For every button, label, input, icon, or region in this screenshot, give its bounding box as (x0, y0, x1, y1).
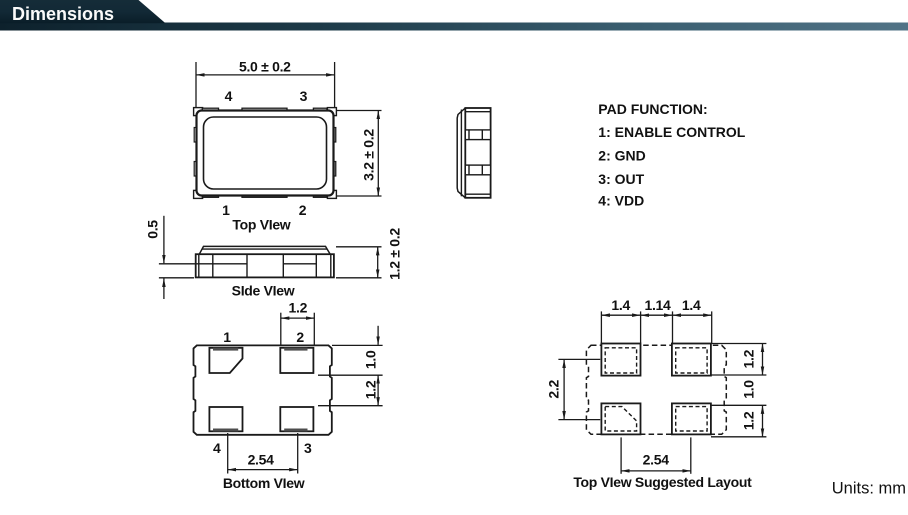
svg-text:1.2: 1.2 (289, 299, 308, 315)
svg-text:SIde VIew: SIde VIew (232, 283, 295, 299)
svg-text:1.2: 1.2 (362, 380, 378, 399)
svg-text:1.0: 1.0 (741, 380, 757, 399)
svg-text:1.2 ± 0.2: 1.2 ± 0.2 (387, 228, 403, 280)
svg-text:3: OUT: 3: OUT (598, 171, 644, 187)
svg-text:1.2: 1.2 (741, 411, 757, 430)
svg-text:PAD FUNCTION:: PAD FUNCTION: (598, 101, 707, 117)
svg-text:2: 2 (296, 329, 304, 345)
svg-text:4: 4 (225, 88, 233, 104)
svg-text:2.2: 2.2 (546, 380, 562, 399)
svg-text:0.5: 0.5 (145, 220, 161, 239)
svg-text:1: 1 (222, 202, 230, 218)
svg-text:2.54: 2.54 (643, 452, 670, 468)
svg-text:3: 3 (300, 88, 308, 104)
svg-text:3.2 ± 0.2: 3.2 ± 0.2 (361, 129, 377, 181)
svg-text:1: ENABLE CONTROL: 1: ENABLE CONTROL (598, 124, 745, 140)
svg-text:1.4: 1.4 (682, 297, 701, 313)
svg-text:4: 4 (213, 440, 221, 456)
svg-text:3: 3 (304, 440, 312, 456)
svg-text:1.2: 1.2 (741, 349, 757, 368)
svg-text:2: GND: 2: GND (598, 148, 645, 164)
svg-text:1.14: 1.14 (644, 297, 671, 313)
svg-text:2.54: 2.54 (248, 451, 275, 467)
svg-text:Top VIew: Top VIew (232, 216, 290, 232)
svg-text:5.0 ± 0.2: 5.0 ± 0.2 (239, 58, 291, 74)
svg-text:Top VIew Suggested Layout: Top VIew Suggested Layout (573, 474, 752, 490)
svg-text:Bottom VIew: Bottom VIew (223, 475, 305, 491)
svg-text:1.4: 1.4 (611, 297, 630, 313)
svg-text:1.0: 1.0 (362, 350, 378, 369)
svg-text:2: 2 (299, 202, 307, 218)
svg-text:Dimensions: Dimensions (12, 4, 114, 24)
svg-text:1: 1 (223, 329, 231, 345)
svg-text:4: VDD: 4: VDD (598, 192, 644, 208)
svg-text:Units: mm: Units: mm (832, 480, 906, 498)
